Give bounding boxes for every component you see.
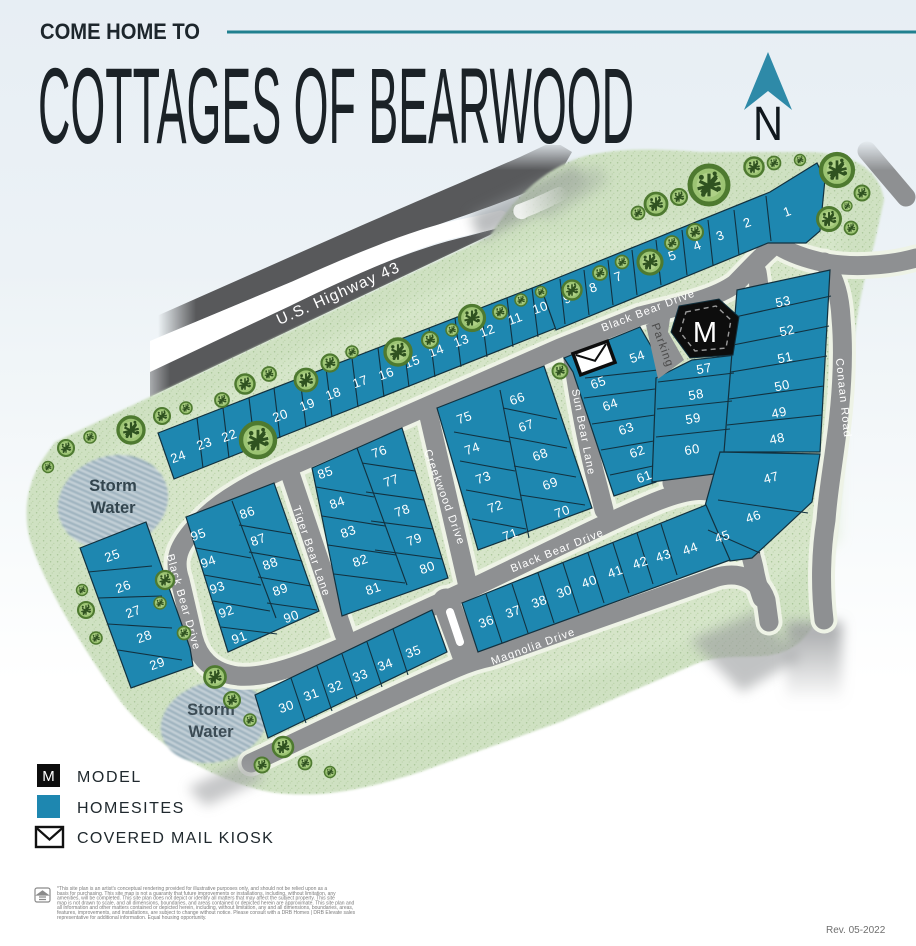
svg-text:60: 60 <box>683 441 701 458</box>
svg-text:MODEL: MODEL <box>77 769 142 786</box>
svg-text:59: 59 <box>684 410 702 427</box>
svg-text:HOMESITES: HOMESITES <box>77 800 185 817</box>
svg-text:M: M <box>42 768 55 785</box>
svg-text:M: M <box>693 317 717 349</box>
svg-text:50: 50 <box>773 377 791 395</box>
svg-text:Water: Water <box>90 499 136 517</box>
svg-text:COME HOME TO: COME HOME TO <box>40 19 200 44</box>
svg-text:57: 57 <box>695 360 713 377</box>
svg-text:49: 49 <box>770 404 788 422</box>
svg-text:Water: Water <box>188 723 234 741</box>
svg-text:52: 52 <box>778 322 796 340</box>
svg-text:COVERED MAIL KIOSK: COVERED MAIL KIOSK <box>77 830 274 847</box>
svg-text:Rev. 05-2022: Rev. 05-2022 <box>826 925 886 936</box>
svg-text:Storm: Storm <box>89 477 137 495</box>
svg-text:53: 53 <box>774 293 792 311</box>
svg-text:48: 48 <box>768 430 786 448</box>
svg-text:58: 58 <box>687 386 705 403</box>
svg-text:51: 51 <box>776 349 794 367</box>
svg-text:representative for additional: representative for additional informatio… <box>57 915 206 921</box>
svg-text:N: N <box>753 98 783 151</box>
